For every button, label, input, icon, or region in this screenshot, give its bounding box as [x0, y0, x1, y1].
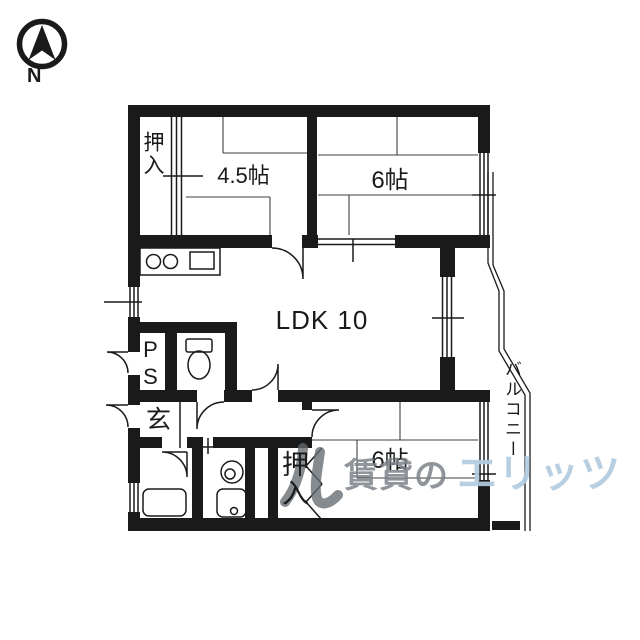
door-washroom — [162, 452, 187, 477]
washroom-fixtures — [143, 489, 186, 516]
bath-basin-inner-icon — [225, 469, 235, 479]
window-ldk-left — [104, 287, 142, 317]
kitchen — [140, 248, 220, 275]
washing-machine-icon — [143, 489, 186, 516]
kitchen-sink-icon — [190, 252, 214, 269]
door-room45-to-ldk — [272, 248, 303, 279]
room6-top-ldk-sliding-door — [318, 239, 395, 262]
label-room-6-top: 6帖 — [350, 168, 430, 193]
label-closet-top: 押入 — [139, 131, 163, 177]
door-toilet — [197, 402, 224, 429]
bath-sliding-door-mark — [202, 438, 214, 454]
toilet-tank-icon — [186, 339, 212, 352]
balcony-end-mark — [492, 521, 520, 530]
label-closet-bottom: 押入 — [279, 450, 307, 508]
door-room6-bottom — [312, 410, 339, 437]
label-pipe-space: PS — [139, 337, 162, 391]
window-washroom-left — [130, 483, 138, 512]
toilet-bowl-icon — [188, 351, 210, 379]
door-entrance — [106, 405, 128, 427]
label-room-45: 4.5帖 — [196, 164, 291, 187]
label-room-6-bottom: 6帖 — [350, 448, 430, 473]
label-ldk: LDK 10 — [262, 307, 382, 334]
toilet-fixture — [186, 339, 212, 379]
label-entrance: 玄 — [146, 407, 171, 433]
compass-north-label: N — [27, 66, 57, 87]
stove-burner-icon — [147, 255, 161, 269]
bathtub-drain-icon — [231, 508, 238, 515]
door-pipe-space — [107, 352, 128, 373]
door-hall-to-ldk — [252, 364, 278, 390]
compass-needle-north-icon — [29, 25, 56, 60]
balcony-railing — [488, 172, 530, 531]
window-ldk-right — [432, 277, 464, 357]
stove-burner-icon — [164, 255, 178, 269]
bathroom-fixtures — [217, 461, 246, 517]
window-room6-bottom-right — [472, 402, 496, 480]
bath-basin-icon — [221, 461, 243, 483]
floor-plan-canvas: N 押入 4.5帖 6帖 LDK 10 PS 玄 押入 6帖 バルコニー 賃貸の… — [0, 0, 640, 640]
compass — [20, 22, 65, 67]
label-balcony: バルコニー — [496, 360, 520, 460]
